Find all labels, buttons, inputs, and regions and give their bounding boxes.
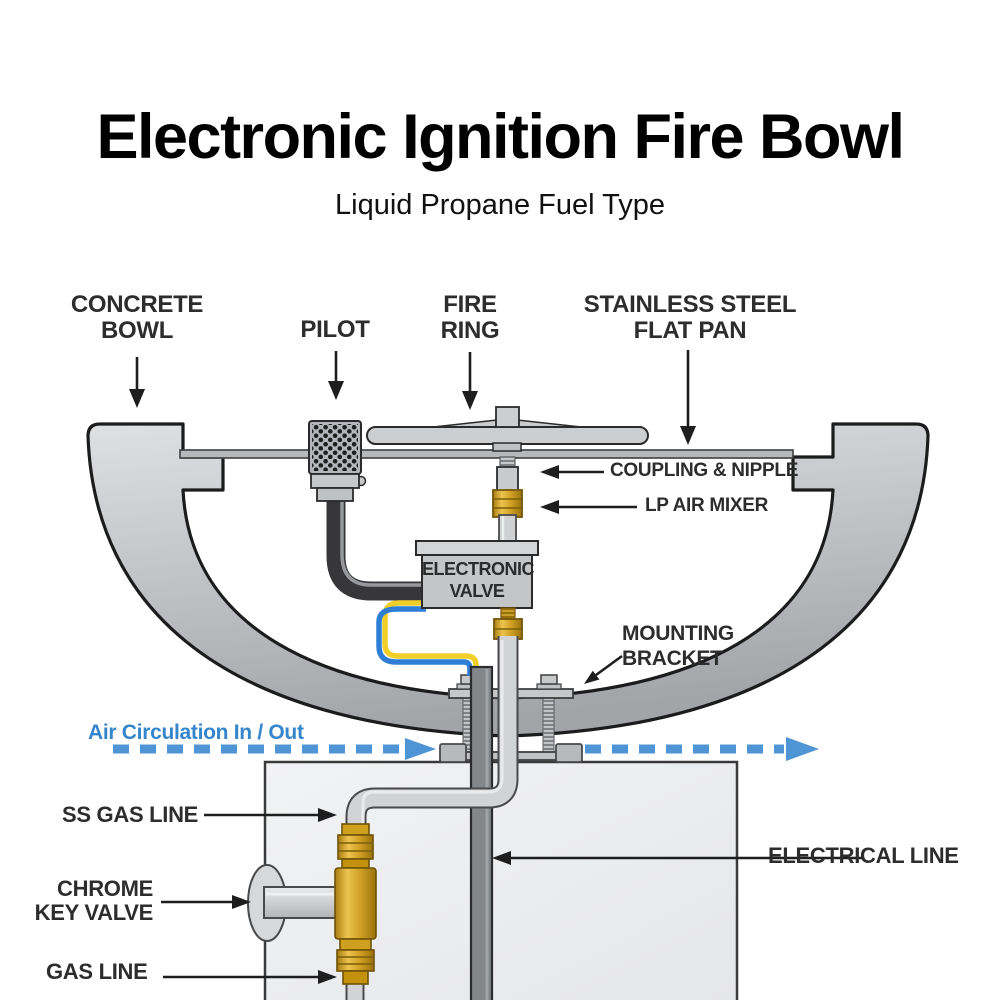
callout-air-circulation: Air Circulation In / Out bbox=[88, 722, 304, 745]
callout-line: FLAT PAN bbox=[570, 318, 810, 344]
callout-ss-gas-line: SS GAS LINE bbox=[62, 803, 198, 827]
callout-line: RING bbox=[395, 318, 545, 344]
callout-fire-ring: FIRE RING bbox=[395, 292, 545, 344]
callout-line: VALVE bbox=[422, 581, 532, 603]
callout-pilot: PILOT bbox=[260, 317, 410, 343]
fire-bowl-diagram-page: Electronic Ignition Fire Bowl Liquid Pro… bbox=[0, 0, 1000, 1000]
callout-line: STAINLESS STEEL bbox=[570, 292, 810, 318]
key-valve-brass-shape bbox=[335, 824, 376, 984]
callout-gas-line: GAS LINE bbox=[46, 960, 148, 984]
electrical-line-shape bbox=[471, 667, 492, 1000]
callout-chrome-key-valve: CHROME KEY VALVE bbox=[20, 877, 153, 925]
callout-flat-pan: STAINLESS STEEL FLAT PAN bbox=[570, 292, 810, 344]
callout-line: CONCRETE bbox=[57, 292, 217, 318]
callout-line: CHROME bbox=[20, 877, 153, 901]
callout-line: KEY VALVE bbox=[20, 901, 153, 925]
coupling-arrow-icon bbox=[540, 465, 559, 479]
ignition-wires bbox=[379, 603, 476, 676]
electronic-valve-label: ELECTRONIC VALVE bbox=[422, 559, 532, 602]
mixer-arrow-icon bbox=[540, 500, 559, 514]
callout-electrical-line: ELECTRICAL LINE bbox=[768, 844, 959, 868]
flat-pan-arrow-icon bbox=[680, 426, 696, 445]
fire-ring-arrow-icon bbox=[462, 391, 478, 410]
callout-line: BOWL bbox=[57, 318, 217, 344]
callout-concrete-bowl: CONCRETE BOWL bbox=[57, 292, 217, 344]
coupling-nipple-shape bbox=[497, 457, 518, 493]
callout-lp-air-mixer: LP AIR MIXER bbox=[645, 496, 768, 517]
callout-line: FIRE bbox=[395, 292, 545, 318]
callout-mounting-bracket: MOUNTING BRACKET bbox=[622, 622, 734, 672]
callout-coupling-nipple: COUPLING & NIPPLE bbox=[610, 461, 798, 482]
lp-air-mixer-shape bbox=[493, 490, 522, 543]
pilot-shape bbox=[309, 421, 428, 591]
callout-line: ELECTRONIC bbox=[422, 559, 532, 581]
callout-line: BRACKET bbox=[622, 647, 734, 672]
pilot-arrow-icon bbox=[328, 381, 344, 400]
page-title: Electronic Ignition Fire Bowl bbox=[0, 106, 1000, 169]
flat-pan-shape bbox=[180, 450, 793, 458]
concrete-bowl-arrow-icon bbox=[129, 389, 145, 408]
fire-ring-shape bbox=[367, 407, 648, 451]
callout-line: MOUNTING bbox=[622, 622, 734, 647]
page-subtitle: Liquid Propane Fuel Type bbox=[0, 190, 1000, 221]
